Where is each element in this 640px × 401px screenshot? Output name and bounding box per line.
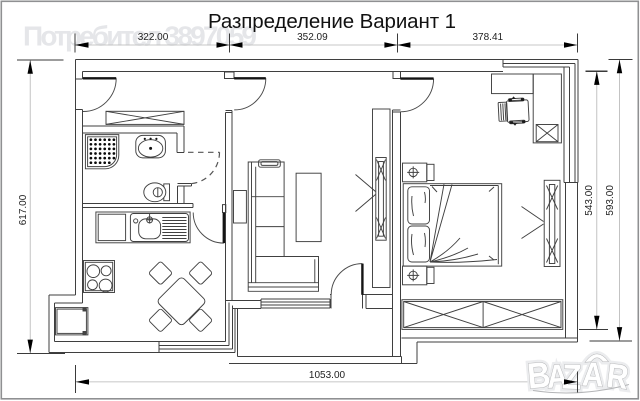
svg-text:617.00: 617.00 [18,194,29,225]
svg-text:A: A [581,355,605,394]
svg-text:1053.00: 1053.00 [309,370,346,381]
svg-text:R: R [605,356,631,397]
svg-text:352.09: 352.09 [297,32,328,43]
svg-text:Разпределение Вариант 1: Разпределение Вариант 1 [208,10,456,33]
svg-text:543.00: 543.00 [584,185,595,216]
svg-text:Z: Z [562,357,582,397]
svg-text:322.00: 322.00 [138,32,169,43]
svg-text:593.00: 593.00 [605,185,616,216]
svg-text:378.41: 378.41 [473,32,504,43]
